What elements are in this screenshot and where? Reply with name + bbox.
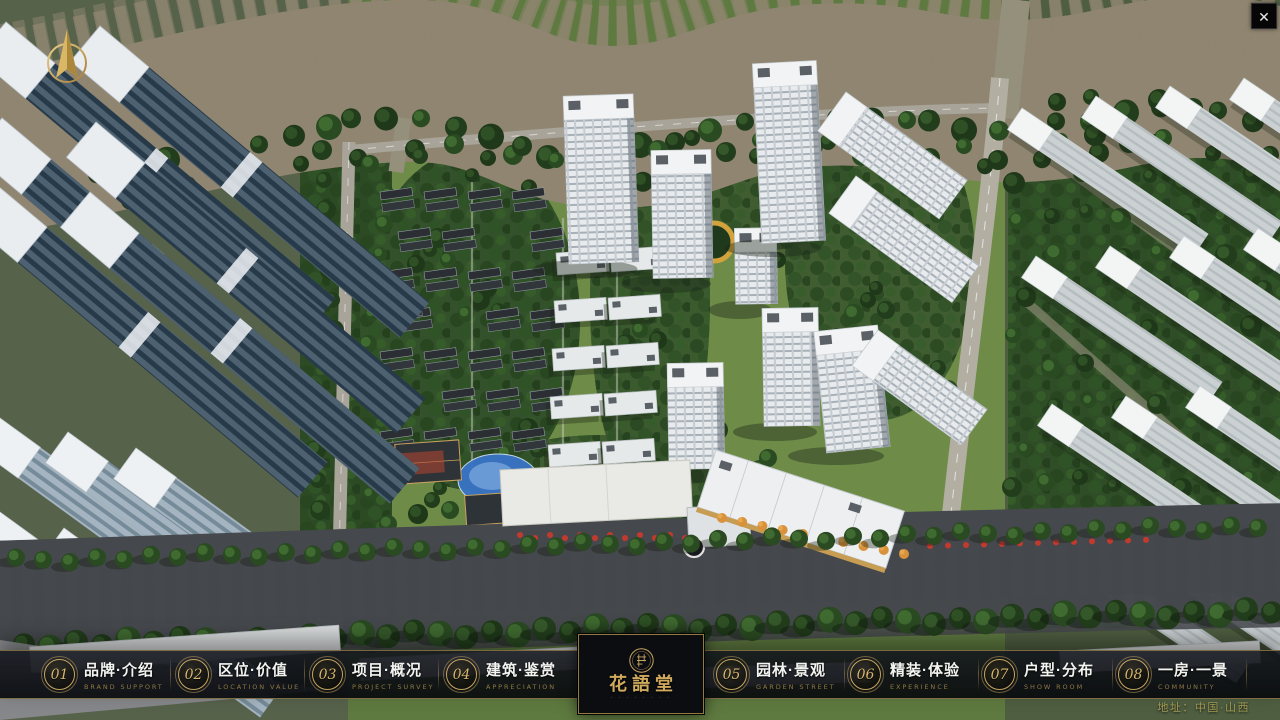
nav-divider — [844, 657, 845, 691]
nav-label: 建筑·鉴赏 — [486, 659, 556, 680]
nav-divider — [170, 657, 171, 691]
nav-badge-08: 08 — [1118, 659, 1149, 690]
nav-label: 品牌·介绍 — [84, 659, 164, 680]
nav-item-location[interactable]: 02 区位·价值 LOCATION VALUE — [178, 651, 300, 698]
nav-item-brand[interactable]: 01 品牌·介绍 BRAND SUPPORT — [44, 651, 164, 698]
nav-item-views[interactable]: 08 一房·一景 COMMUNITY — [1118, 651, 1228, 698]
nav-subtitle: PROJECT SURVEY — [352, 683, 434, 691]
nav-item-project[interactable]: 03 项目·概况 PROJECT SURVEY — [312, 651, 434, 698]
seal-emblem-icon — [628, 647, 655, 674]
logo-panel[interactable]: 花語堂 · · · · · · · · — [578, 634, 704, 714]
logo-subtitle: · · · · · · · · — [611, 696, 672, 701]
nav-item-architecture[interactable]: 04 建筑·鉴赏 APPRECIATION — [446, 651, 556, 698]
nav-label: 户型·分布 — [1024, 659, 1094, 680]
project-address: 地址：中国·山西 — [1157, 699, 1250, 715]
nav-subtitle: LOCATION VALUE — [218, 683, 300, 691]
nav-subtitle: BRAND SUPPORT — [84, 683, 164, 691]
logo-title: 花語堂 — [604, 676, 678, 694]
nav-subtitle: COMMUNITY — [1158, 683, 1228, 691]
nav-label: 项目·概况 — [352, 659, 434, 680]
nav-item-garden[interactable]: 05 园林·景观 GARDEN STREET — [716, 651, 836, 698]
nav-subtitle: EXPERIENCE — [890, 683, 960, 691]
nav-subtitle: GARDEN STREET — [756, 683, 836, 691]
nav-label: 区位·价值 — [218, 659, 300, 680]
nav-badge-02: 02 — [178, 659, 209, 690]
nav-subtitle: APPRECIATION — [486, 683, 556, 691]
close-button[interactable]: ✕ — [1251, 3, 1277, 29]
nav-divider — [1112, 657, 1113, 691]
nav-divider — [304, 657, 305, 691]
nav-badge-04: 04 — [446, 659, 477, 690]
nav-badge-05: 05 — [716, 659, 747, 690]
nav-label: 精装·体验 — [890, 659, 960, 680]
nav-item-interior[interactable]: 06 精装·体验 EXPERIENCE — [850, 651, 960, 698]
nav-subtitle: SHOW ROOM — [1024, 683, 1094, 691]
nav-divider — [1246, 657, 1247, 691]
nav-label: 一房·一景 — [1158, 659, 1228, 680]
presentation-window: ✕ 01 品牌·介绍 BRAND SUPPORT 02 区位·价值 LOCATI… — [0, 0, 1280, 720]
nav-badge-03: 03 — [312, 659, 343, 690]
nav-divider — [438, 657, 439, 691]
nav-divider — [978, 657, 979, 691]
nav-badge-07: 07 — [984, 659, 1015, 690]
masterplan-3d-view[interactable] — [0, 0, 1280, 720]
nav-label: 园林·景观 — [756, 659, 836, 680]
nav-badge-06: 06 — [850, 659, 881, 690]
nav-badge-01: 01 — [44, 659, 75, 690]
nav-item-floorplans[interactable]: 07 户型·分布 SHOW ROOM — [984, 651, 1094, 698]
